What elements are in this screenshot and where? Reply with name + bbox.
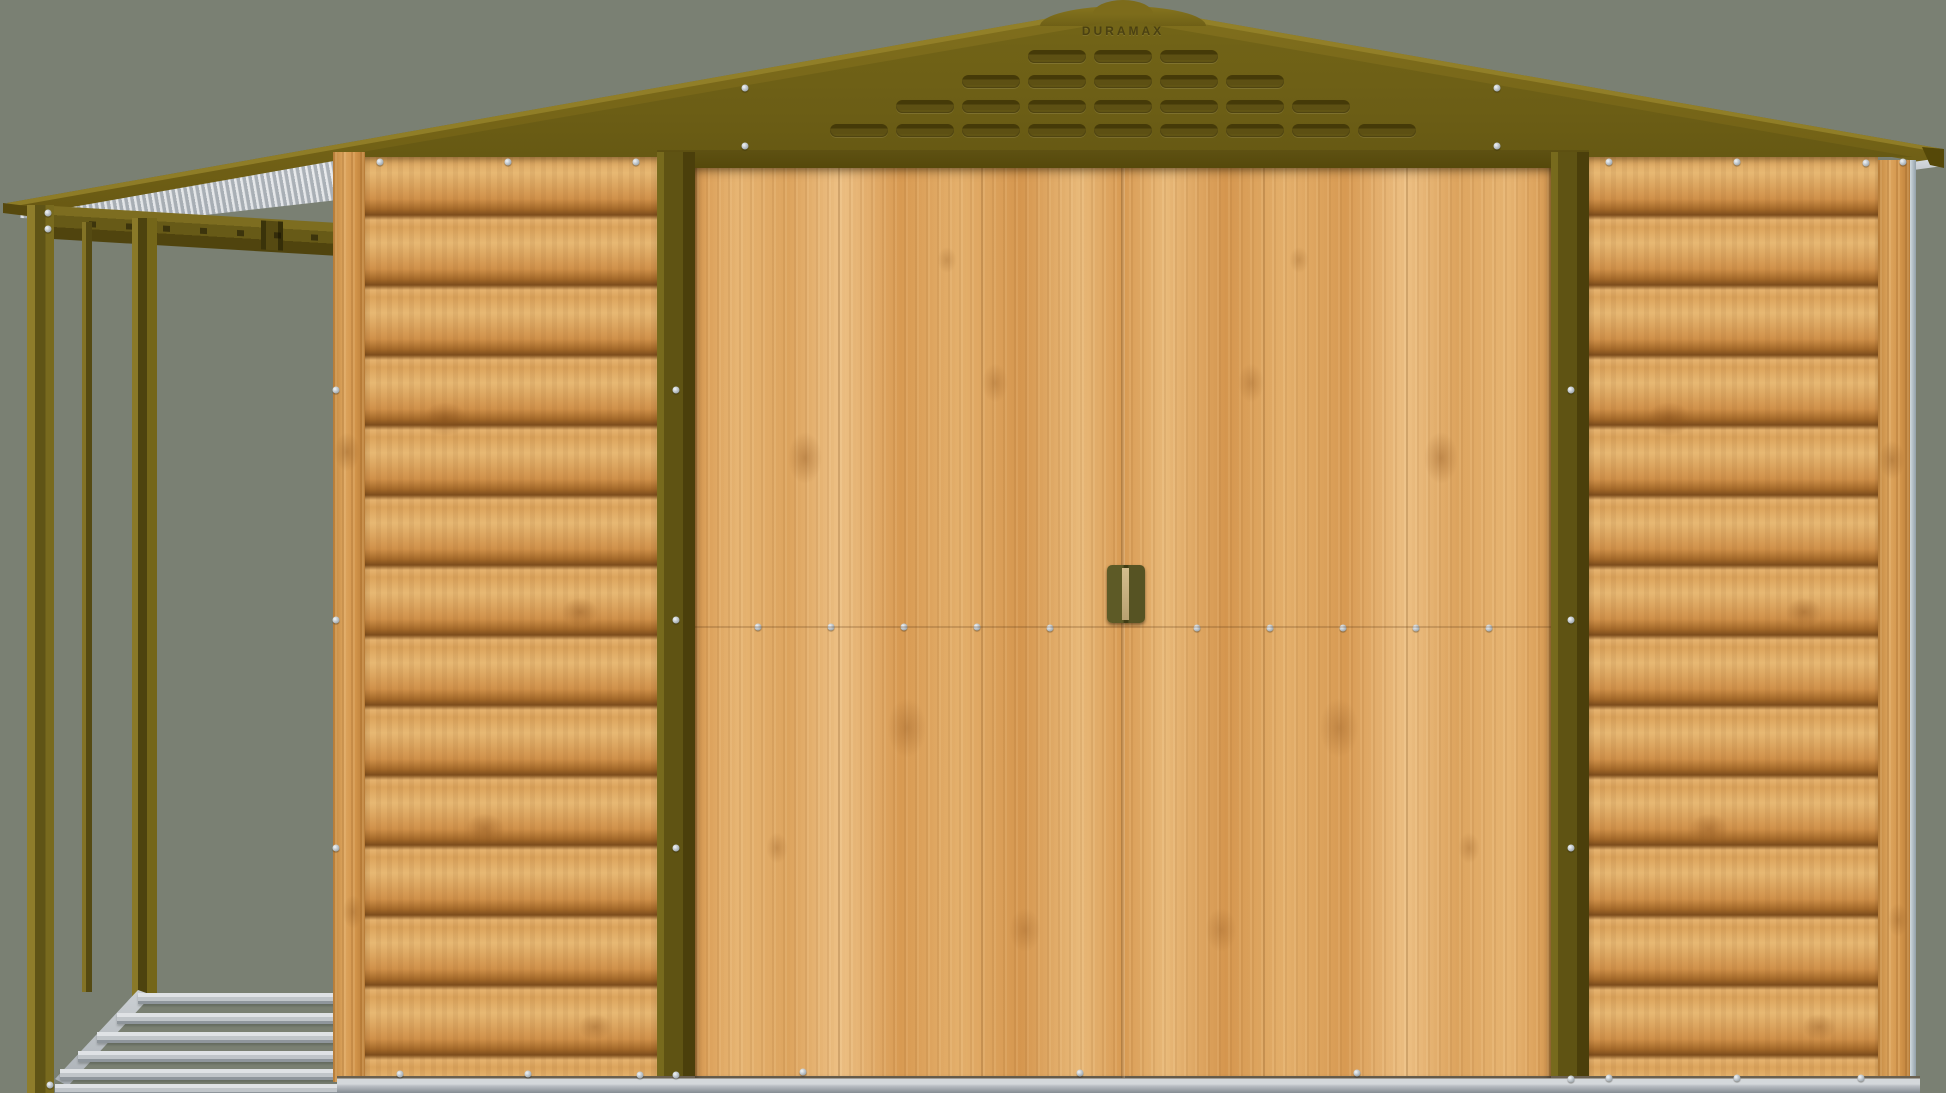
rivet bbox=[333, 845, 340, 852]
right-corner-trim bbox=[1878, 160, 1910, 1085]
floor-joist bbox=[138, 993, 340, 1004]
left-wall-planks bbox=[365, 157, 657, 1080]
floor-joist bbox=[60, 1069, 340, 1080]
door-handle-latch-strip bbox=[1122, 568, 1129, 620]
louver-vent bbox=[830, 124, 888, 137]
rivet bbox=[1568, 1076, 1575, 1083]
rivet bbox=[673, 387, 680, 394]
rivet bbox=[45, 226, 52, 233]
log-store-top-rail bbox=[53, 206, 337, 256]
rivet bbox=[673, 617, 680, 624]
rivet bbox=[1734, 159, 1741, 166]
rivet bbox=[1900, 159, 1907, 166]
shed-product-render: DURAMAX bbox=[0, 0, 1946, 1093]
louver-vent bbox=[1292, 100, 1350, 113]
door-handle bbox=[1107, 565, 1145, 623]
rivet bbox=[333, 617, 340, 624]
louver-vent bbox=[962, 75, 1020, 88]
log-store-front-post bbox=[27, 205, 54, 1093]
louver-vent bbox=[1160, 124, 1218, 137]
rivet bbox=[1354, 1070, 1361, 1077]
sliding-doors bbox=[695, 168, 1551, 1078]
louver-vent bbox=[1292, 124, 1350, 137]
rivet bbox=[1568, 387, 1575, 394]
louver-vent bbox=[1226, 124, 1284, 137]
right-door-panel bbox=[1123, 168, 1551, 1078]
rivet bbox=[1568, 617, 1575, 624]
louver-vent bbox=[1028, 124, 1086, 137]
log-store-middle-pole bbox=[82, 222, 92, 992]
floor-joist bbox=[117, 1013, 340, 1024]
rivet bbox=[742, 143, 749, 150]
base-rail bbox=[337, 1076, 1920, 1093]
louver-vent bbox=[896, 124, 954, 137]
louver-vent bbox=[1094, 100, 1152, 113]
rivet bbox=[1494, 85, 1501, 92]
louver-vent bbox=[1094, 50, 1152, 63]
rivet bbox=[525, 1071, 532, 1078]
log-store-rail-bracket bbox=[261, 220, 283, 250]
rivet bbox=[1606, 1075, 1613, 1082]
rivet bbox=[800, 1069, 807, 1076]
rivet bbox=[673, 1072, 680, 1079]
louver-vent bbox=[1028, 75, 1086, 88]
louver-vent bbox=[1160, 100, 1218, 113]
rivet bbox=[47, 1082, 54, 1089]
louver-vent bbox=[1028, 50, 1086, 63]
right-wall-planks bbox=[1589, 157, 1878, 1085]
louver-vent bbox=[1226, 100, 1284, 113]
rivet bbox=[1858, 1075, 1865, 1082]
roof-ridge-peak bbox=[1093, 0, 1153, 14]
door-horizontal-seam bbox=[695, 626, 1551, 628]
louver-vent bbox=[962, 124, 1020, 137]
louver-vent bbox=[1160, 75, 1218, 88]
rivet bbox=[742, 85, 749, 92]
floor-joist bbox=[78, 1051, 340, 1062]
louver-vent bbox=[962, 100, 1020, 113]
louver-vent bbox=[1226, 75, 1284, 88]
rivet bbox=[1863, 160, 1870, 167]
rivet bbox=[1606, 159, 1613, 166]
rivet bbox=[397, 1071, 404, 1078]
duramax-logo: DURAMAX bbox=[1043, 24, 1203, 38]
rivet bbox=[1494, 143, 1501, 150]
rivet bbox=[377, 159, 384, 166]
rivet bbox=[505, 159, 512, 166]
louver-vent bbox=[1028, 100, 1086, 113]
louver-vent bbox=[896, 100, 954, 113]
rivet bbox=[1568, 845, 1575, 852]
rivet bbox=[1734, 1075, 1741, 1082]
rivet bbox=[637, 1072, 644, 1079]
rivet bbox=[45, 210, 52, 217]
floor-joist bbox=[55, 1084, 340, 1093]
louver-vent bbox=[1094, 75, 1152, 88]
louver-vent bbox=[1094, 124, 1152, 137]
log-store-rear-post bbox=[132, 218, 157, 998]
rivet bbox=[633, 159, 640, 166]
louver-vent bbox=[1160, 50, 1218, 63]
rivet bbox=[333, 387, 340, 394]
louver-vent bbox=[1358, 124, 1416, 137]
rivet bbox=[1077, 1070, 1084, 1077]
door-center-seam bbox=[1121, 168, 1125, 1078]
right-wall-edge-highlight bbox=[1910, 160, 1916, 1085]
rivet bbox=[673, 845, 680, 852]
floor-joist bbox=[97, 1032, 340, 1043]
